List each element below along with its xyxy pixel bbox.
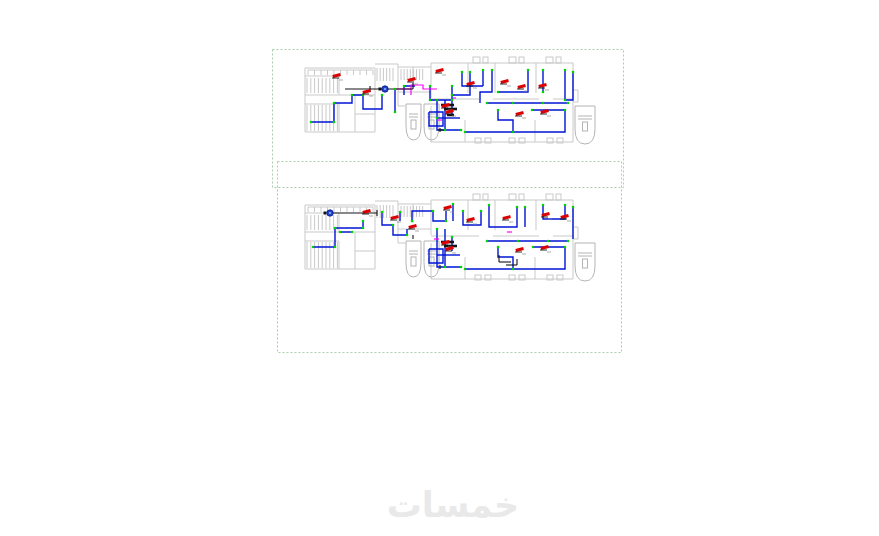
junction-node [512,268,515,271]
roof-tab [509,194,516,200]
junction-node [542,102,545,105]
junction-node [542,204,545,207]
pipe-run [382,212,407,235]
device-symbol [408,224,419,231]
device-symbol [500,79,511,86]
cad-page: خمسات [0,0,879,536]
junction-node [444,266,447,269]
junction-node [432,210,435,213]
junction-node [572,206,575,209]
junction-node [482,69,485,72]
junction-node [399,211,402,214]
junction-node [392,224,395,227]
junction-node [362,220,365,223]
floor-plan-lower [305,194,595,281]
pipe-run [465,247,565,269]
junction-node [516,206,519,209]
junction-node [394,111,397,114]
junction-node [464,131,467,134]
junction-node [497,246,500,249]
junction-node [403,85,406,88]
junction-node [542,91,545,94]
roof-tab [483,57,488,63]
junction-node [512,102,515,105]
junction-node [564,204,567,207]
junction-node [452,203,455,206]
elevator-symbol [406,241,421,277]
elevator-symbol [575,106,595,144]
stair-hatch [308,70,373,75]
junction-node [362,227,365,230]
roof-tab [509,57,516,63]
junction-node [497,91,500,94]
junction-node [464,268,467,271]
device-symbol [540,245,551,252]
junction-node [531,109,534,112]
stair-hatch [307,78,337,93]
device-symbol [517,84,528,91]
junction-node [564,69,567,72]
junction-node [527,69,530,72]
junction-node [460,266,463,269]
watermark-text: خمسات [378,486,528,528]
junction-node [381,94,384,97]
junction-node [444,129,447,132]
pipe-run [489,205,517,227]
junction-node [451,94,454,97]
junction-node [429,99,432,102]
stair-hatch [307,215,337,230]
junction-node [333,121,336,124]
roof-tab [519,57,524,63]
junction-node [567,102,570,105]
junction-node [339,231,342,234]
junction-node [436,228,439,231]
roof-tab [519,194,524,200]
junction-node [469,71,472,74]
junction-node [486,240,489,243]
pipe-run [363,95,382,109]
device-symbol [515,247,526,254]
stair-hatch [307,242,337,268]
roof-tab [546,194,553,200]
floor-plan-upper [305,57,595,144]
junction-node [572,71,575,74]
roof-tab [473,194,480,200]
junction-node [334,227,337,230]
junction-node [480,210,483,213]
junction-node [451,99,454,102]
pipe-run [465,110,565,132]
viewport-frame-lower [278,162,622,353]
junction-node [333,102,336,105]
pump-symbol [379,86,389,92]
junction-node [312,246,315,249]
junction-node [564,109,567,112]
pipe-run [498,110,513,132]
junction-node [394,88,397,91]
pipe-run [412,211,446,221]
junction-node [429,85,432,88]
roof-tab [556,194,561,200]
roof-tab [483,194,488,200]
junction-node [488,204,491,207]
junction-node [351,94,354,97]
junction-node [497,109,500,112]
junction-node [486,102,489,105]
junction-node [436,117,439,120]
pipe-run [498,247,513,269]
junction-node [381,211,384,214]
roof-tab [473,57,480,63]
pipe-run [430,86,452,100]
cad-drawing [0,0,879,536]
roof-tab [546,57,553,63]
stair-hatch [307,105,337,131]
junction-node [436,99,439,102]
junction-node [411,220,414,223]
pump-symbol [324,210,334,216]
junction-node [517,240,520,243]
pipe-run [565,72,573,100]
junction-node [512,131,515,134]
junction-node [334,246,337,249]
device-symbol [560,214,571,221]
junction-node [564,246,567,249]
junction-node [542,69,545,72]
junction-node [532,246,535,249]
junction-node [491,69,494,72]
elevator-symbol [575,243,595,281]
junction-node [564,99,567,102]
junction-node [524,206,527,209]
roof-tab [556,57,561,63]
device-symbol [515,111,526,118]
junction-node [406,234,409,237]
junction-node [462,210,465,213]
junction-node [351,231,354,234]
stair-hatch [377,205,393,218]
junction-node [451,236,454,239]
elevator-symbol [406,104,421,140]
junction-node [460,129,463,132]
junction-node [547,240,550,243]
junction-node [451,85,454,88]
junction-node [310,121,313,124]
junction-node [567,240,570,243]
junction-node [461,71,464,74]
stair-hatch [377,68,393,81]
junction-node [445,220,448,223]
device-symbol [435,68,446,75]
device-symbol [502,215,513,222]
